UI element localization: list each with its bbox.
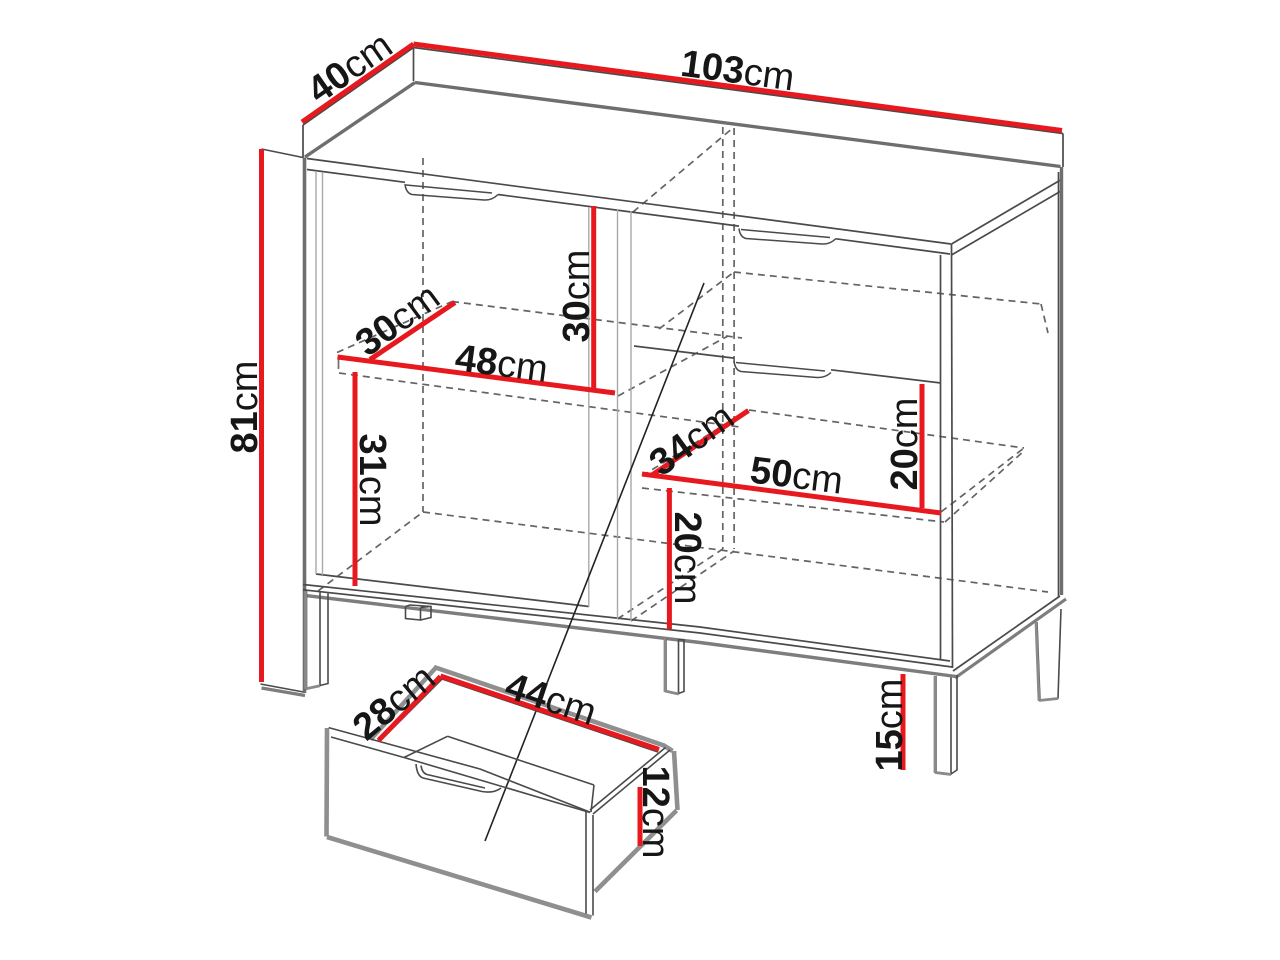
svg-text:30cm: 30cm [556, 250, 598, 343]
svg-text:15cm: 15cm [869, 679, 911, 772]
svg-text:12cm: 12cm [634, 766, 676, 859]
svg-text:81cm: 81cm [224, 361, 266, 454]
svg-text:31cm: 31cm [351, 434, 393, 527]
svg-text:20cm: 20cm [884, 398, 926, 491]
svg-text:20cm: 20cm [666, 512, 708, 605]
